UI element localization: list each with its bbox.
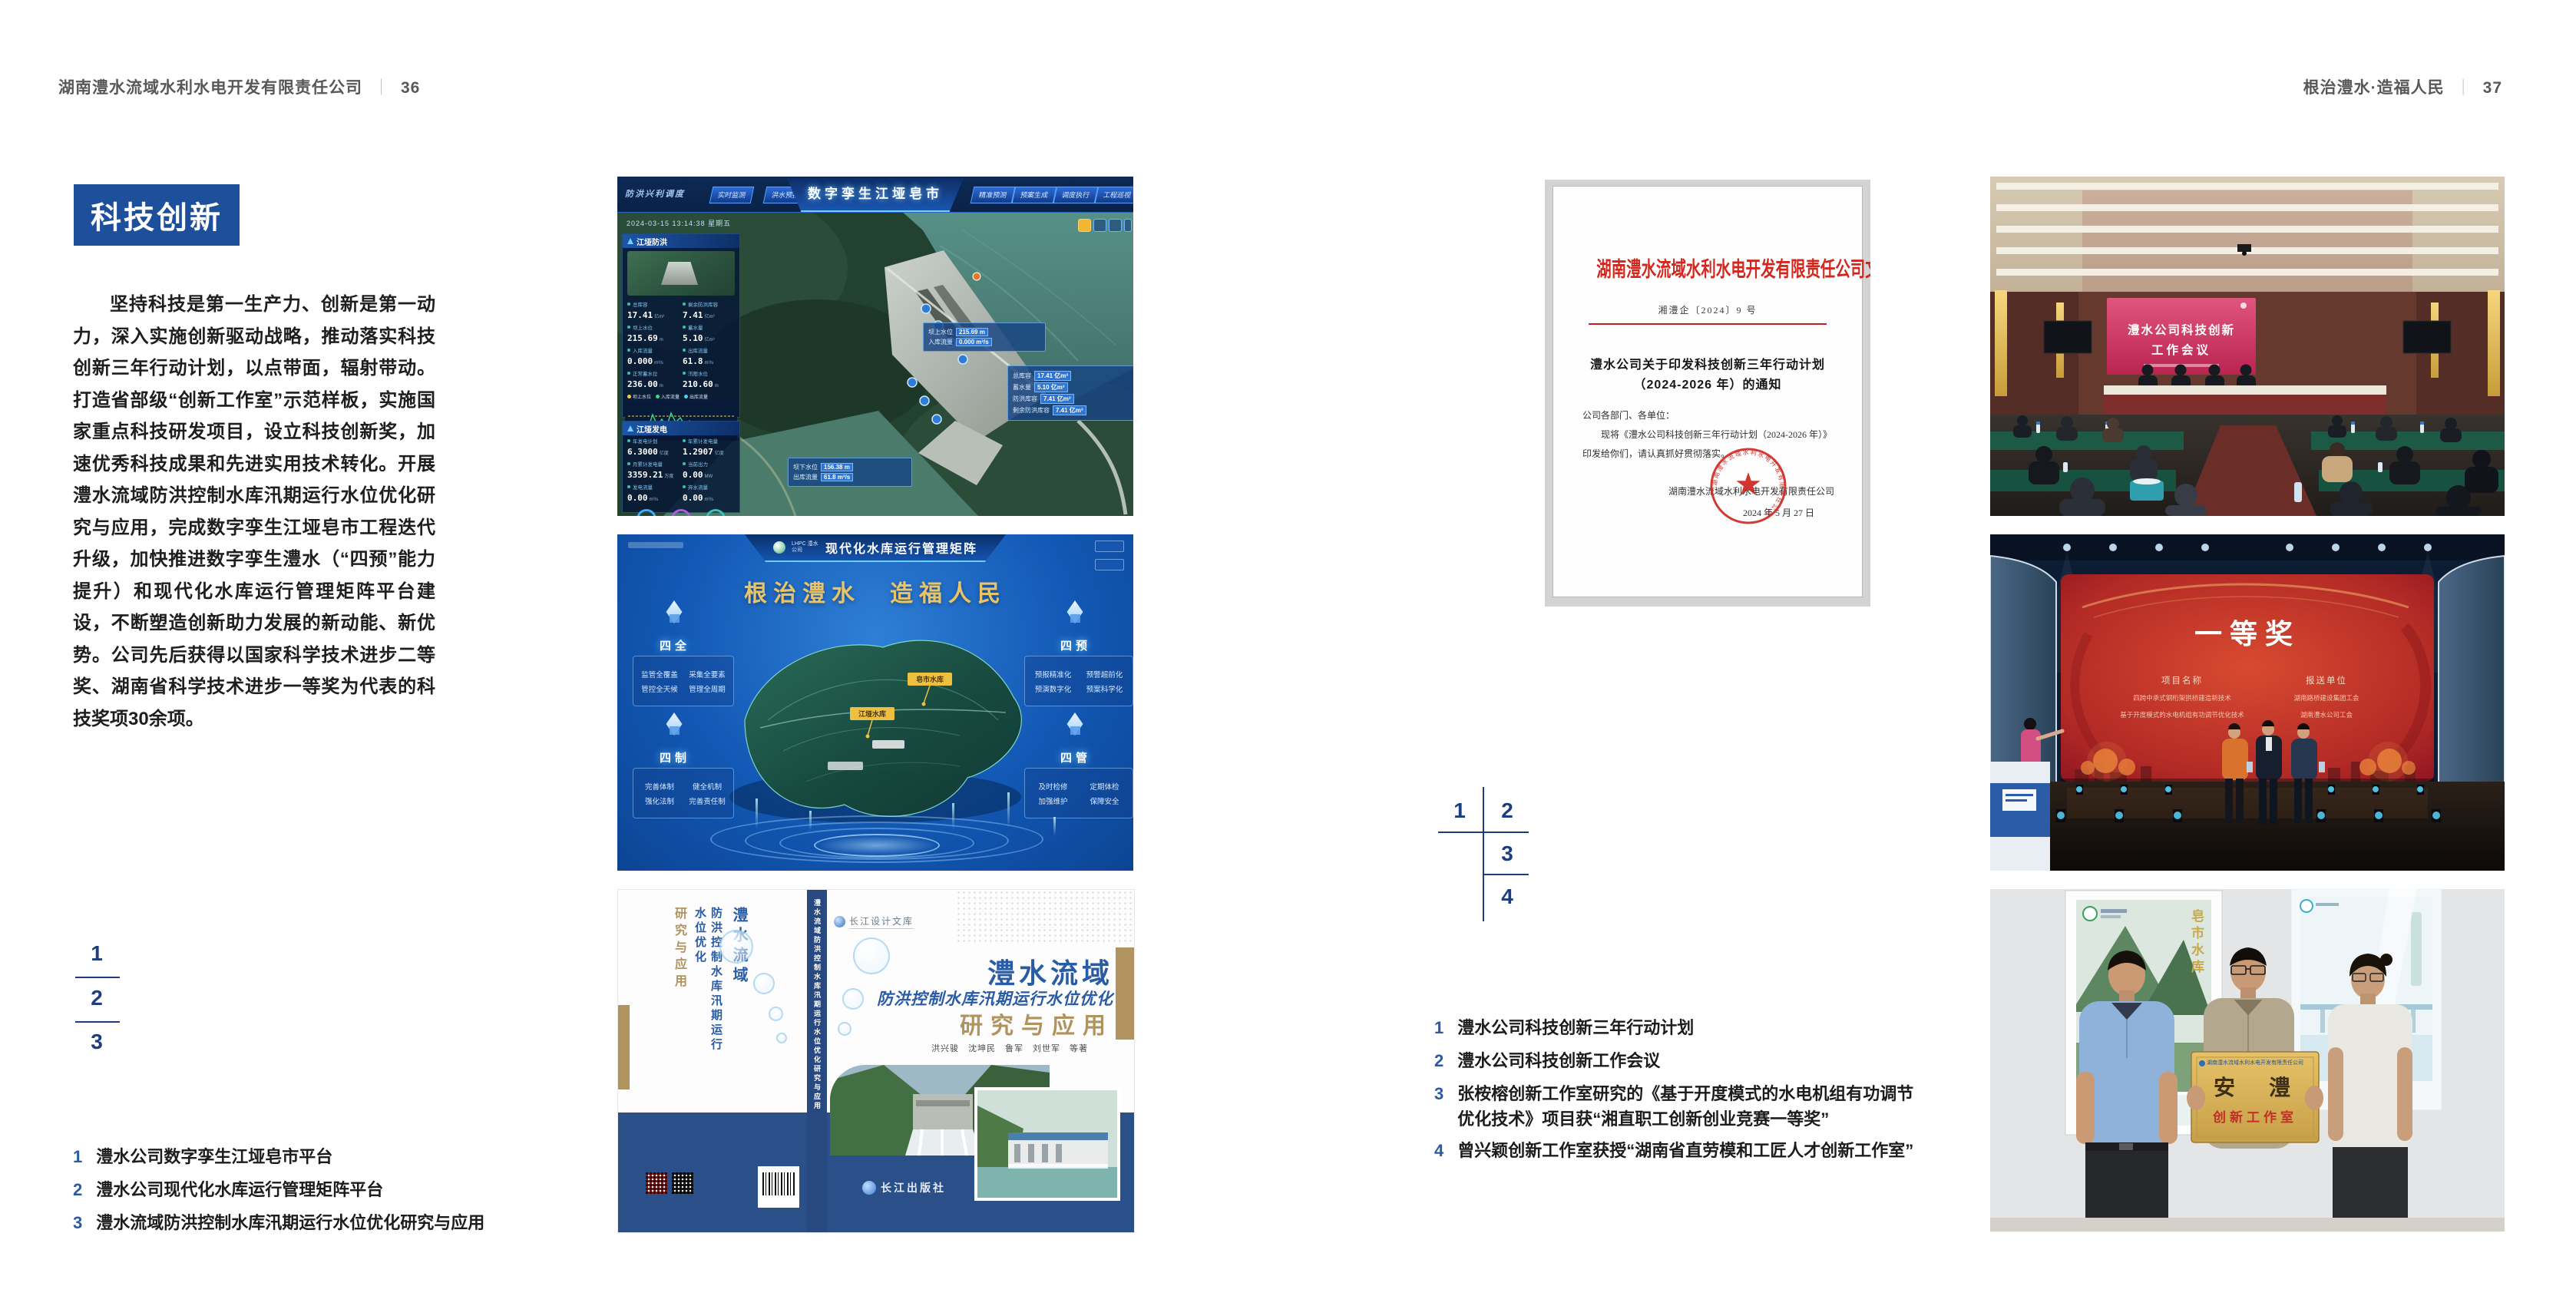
figure-award-ceremony-photo: 一等奖 项目名称 报送单位 四跨中承式钢桁架拱桥建造新技术 基于开度模式的水电机… xyxy=(1990,534,2505,871)
panel-header: 江垭防洪 xyxy=(623,234,739,248)
award-project-row: 基于开度模式的水电机组有功调节优化技术 xyxy=(2120,711,2244,719)
caption-text: 张桉榕创新工作室研究的《基于开度模式的水电机组有功调节优化技术》项目获“湘直职工… xyxy=(1457,1081,1926,1132)
publisher-logo-icon xyxy=(862,1181,876,1195)
body-paragraph: 坚持科技是第一生产力、创新是第一动力，深入实施创新驱动战略，推动落实科技创新三年… xyxy=(73,289,435,735)
right-page-number: 37 xyxy=(2483,79,2502,97)
matrix-header: LHPC 澧水公司 现代化水库运行管理矩阵 xyxy=(745,534,1006,562)
group-item: 预报精准化 xyxy=(1028,669,1078,679)
left-header-company: 湖南澧水流域水利水电开发有限责任公司 xyxy=(58,79,362,97)
back-title-sub: 防洪控制水库汛期运行水位优化 xyxy=(692,907,724,1060)
qr-code xyxy=(646,1172,667,1194)
stat-label: 年发电计划 xyxy=(627,437,680,445)
map-label-jiangya: 江垭水库 xyxy=(858,709,886,718)
award-project-row: 四跨中承式钢桁架拱桥建造新技术 xyxy=(2133,694,2231,702)
group-panel: 完善体制 健全机制 强化法制 完善责任制 xyxy=(633,768,734,818)
group-item: 加强维护 xyxy=(1028,795,1078,806)
stat-label: 正常蓄水位 xyxy=(627,369,680,377)
caption-number: 3 xyxy=(1434,1081,1443,1132)
caption-number: 2 xyxy=(73,1177,82,1202)
group-item: 及时检修 xyxy=(1028,781,1078,792)
stat-value: 17.41 xyxy=(627,310,653,320)
publisher-block: 长江出版社 xyxy=(862,1180,946,1195)
company-logo-icon xyxy=(773,541,785,554)
caption-row: 3 张桉榕创新工作室研究的《基于开度模式的水电机组有功调节优化技术》项目获“湘直… xyxy=(1434,1081,1937,1132)
tip-value: 215.69 m xyxy=(956,328,988,336)
left-page-number: 36 xyxy=(401,79,420,97)
group-panel: 监管全覆盖 采集全要素 管控全天候 管理全周期 xyxy=(633,656,734,706)
locate-icon[interactable] xyxy=(1109,219,1122,232)
caption-row: 2 澧水公司科技创新工作会议 xyxy=(1434,1048,1941,1073)
stat-value: 1.2907 xyxy=(683,447,713,457)
stat-value: 0.00 xyxy=(683,470,703,480)
tip-label: 剩余防洪库容 xyxy=(1013,406,1050,415)
caption-text: 澧水公司数字孪生江垭皂市平台 xyxy=(96,1144,332,1169)
brochure-spread: 湖南澧水流域水利水电开发有限责任公司｜36 科技创新 坚持科技是第一生产力、创新… xyxy=(0,0,2576,1306)
stat-unit: 亿m³ xyxy=(705,315,715,319)
chart-legend: 坝上水位 入库流量 出库流量 xyxy=(623,392,739,401)
stat-label: 当前出力 xyxy=(683,460,735,468)
stat-value: 61.8 xyxy=(683,356,703,366)
caption-row: 4 曾兴颖创新工作室获授“湖南省直劳模和工匠人才创新工作室” xyxy=(1434,1138,1941,1163)
bubble-art xyxy=(776,1033,787,1043)
award-col1-header: 项目名称 xyxy=(2161,675,2203,686)
stat-value: 210.60 xyxy=(683,379,713,389)
stat-value: 3359.21 xyxy=(627,470,663,480)
figure-marker: 1 xyxy=(1437,798,1483,823)
tip-value: 156.38 m xyxy=(821,463,853,471)
book-title-accent: 研究与应用 xyxy=(960,1007,1113,1040)
book-title-main: 澧水流域 xyxy=(987,951,1113,991)
user-icon[interactable] xyxy=(1078,219,1091,232)
tip-label: 出库流量 xyxy=(793,473,818,481)
alert-icon[interactable] xyxy=(1124,219,1132,232)
isbn-barcode xyxy=(758,1166,799,1208)
group-item: 预警超前化 xyxy=(1080,669,1129,679)
dashboard-datetime: 2024-03-15 13:14:38 星期五 xyxy=(627,218,731,228)
stat-label: 坝上水位 xyxy=(627,323,680,331)
stat-value: 0.00 xyxy=(627,493,648,503)
publisher-name: 长江出版社 xyxy=(881,1180,946,1195)
series-logo-icon xyxy=(834,916,845,927)
plaque-studio-name: 安 澧 xyxy=(2191,1071,2319,1102)
tab-dispatch-execute[interactable]: 调度执行 xyxy=(1053,187,1099,203)
tip-label: 坝上水位 xyxy=(928,328,953,336)
caption-number: 1 xyxy=(73,1144,82,1169)
cube-icon xyxy=(1066,717,1086,737)
caption-row: 1 澧水公司数字孪生江垭皂市平台 xyxy=(73,1144,549,1169)
cube-icon xyxy=(1066,605,1086,625)
stat-value: 6.3000 xyxy=(627,447,658,457)
series-logo-text: 长江设计文库 xyxy=(849,914,914,929)
header-separator: ｜ xyxy=(2455,79,2472,97)
dot-pattern xyxy=(956,890,1134,945)
stat-value: 215.69 xyxy=(627,333,658,343)
bubble-art xyxy=(719,930,753,964)
stat-value: 7.41 xyxy=(683,310,703,320)
dam-thumbnail xyxy=(627,251,735,296)
matrix-title: 现代化水库运行管理矩阵 xyxy=(825,538,977,557)
caption-row: 2 澧水公司现代化水库运行管理矩阵平台 xyxy=(73,1177,549,1202)
caption-number: 4 xyxy=(1434,1138,1443,1163)
light-pillar xyxy=(809,811,812,831)
award-screen-title: 一等奖 xyxy=(2194,618,2300,650)
back-title-accent: 研究与应用 xyxy=(670,907,688,1060)
stat-unit: m xyxy=(715,384,719,388)
stat-unit: m³/s xyxy=(654,361,663,365)
group-item: 管控全天候 xyxy=(637,683,683,694)
datetime-bar xyxy=(628,542,683,548)
group-item: 健全机制 xyxy=(684,781,730,792)
flood-control-panel: 江垭防洪 总库容17.41亿m³ 剩余防洪库容7.41亿m³ 坝上水位215.6… xyxy=(622,233,740,418)
spine-title: 澧水流域防洪控制水库汛期运行水位优化研究与应用 xyxy=(812,899,822,1129)
caption-number: 2 xyxy=(1434,1048,1443,1073)
group-title: 四预 xyxy=(1026,637,1126,653)
caption-text: 澧水流域防洪控制水库汛期运行水位优化研究与应用 xyxy=(96,1210,484,1235)
group-item: 预演数字化 xyxy=(1028,683,1078,694)
caption-text: 澧水公司科技创新三年行动计划 xyxy=(1457,1015,1694,1040)
power-generation-panel: 江垭发电 年发电计划6.3000亿度 年累计发电量1.2907亿度 月累计发电量… xyxy=(622,421,740,513)
group-panel: 预报精准化 预警超前化 预演数字化 预案科学化 xyxy=(1024,656,1133,706)
bubble-art xyxy=(753,973,775,994)
group-item: 管理全周期 xyxy=(684,683,730,694)
layers-icon[interactable] xyxy=(1093,219,1106,232)
book-authors: 洪兴骏 沈坤民 鲁军 刘世军 等著 xyxy=(931,1042,1088,1054)
panel-header: 江垭发电 xyxy=(623,422,739,435)
stat-unit: 亿度 xyxy=(660,451,669,456)
group-panel: 及时检修 定期体检 加强维护 保障安全 xyxy=(1024,768,1133,818)
marker-divider xyxy=(1483,874,1529,875)
stat-unit: 万度 xyxy=(664,474,673,479)
plaque-company-line: 湖南澧水流域水利水电开发有限责任公司 xyxy=(2191,1059,2319,1066)
light-pillar xyxy=(756,798,758,829)
document-salutation: 公司各部门、各单位： xyxy=(1582,406,1833,425)
stat-value: 236.00 xyxy=(627,379,658,389)
section-title-badge: 科技创新 xyxy=(74,184,240,246)
document-red-rule xyxy=(1589,323,1827,325)
fullscreen-button[interactable] xyxy=(1095,541,1124,552)
group-item: 完善责任制 xyxy=(684,795,730,806)
figure-plaque-group-photo: 皂市水库 湖南澧水流域水利水电开发有限责任公司 安 澧 创新工作室 xyxy=(1990,889,2505,1232)
figure-book-cover: 澧水流域 防洪控制水库汛期运行水位优化 研究与应用 澧水流域防洪控制水库汛期运行… xyxy=(617,889,1135,1233)
stat-label: 剩余防洪库容 xyxy=(683,300,735,308)
right-header-slogan: 根治澧水·造福人民 xyxy=(2303,79,2445,97)
caption-text: 曾兴颖创新工作室获授“湖南省直劳模和工匠人才创新工作室” xyxy=(1457,1138,1913,1163)
group-title: 四制 xyxy=(625,749,725,765)
stat-label: 汛限水位 xyxy=(683,369,735,377)
group-item: 完善体制 xyxy=(637,781,683,792)
marker-divider xyxy=(75,1021,120,1023)
tip-value: 17.41 亿m³ xyxy=(1034,371,1071,381)
document-title-line2: （2024-2026 年）的通知 xyxy=(1553,374,1862,392)
marker-divider xyxy=(75,977,120,978)
tip-value: 7.41 亿m³ xyxy=(1040,394,1074,404)
tab-precise-forecast[interactable]: 精准预测 xyxy=(971,187,1016,203)
tip-value: 5.10 亿m³ xyxy=(1034,382,1068,392)
stat-unit: 亿度 xyxy=(715,451,724,456)
tip-label: 防洪库容 xyxy=(1013,395,1037,403)
figure-official-document: 湖南澧水流域水利水电开发有限责任公司文件 湘澧企〔2024〕9 号 澧水公司关于… xyxy=(1545,180,1870,607)
caption-number: 3 xyxy=(73,1210,82,1235)
tip-label: 坝下水位 xyxy=(793,463,818,471)
stat-label: 发电流量 xyxy=(627,483,680,491)
nav-section-label: 防洪兴利调度 xyxy=(625,187,685,200)
tip-value: 7.41 亿m³ xyxy=(1053,405,1086,415)
stat-unit: MW xyxy=(705,474,713,479)
tab-realtime-monitor[interactable]: 实时监测 xyxy=(709,187,755,203)
map-tooltip-downstream: 坝下水位156.38 m 出库流量61.8 m³/s xyxy=(788,458,912,487)
meeting-screen-line1: 澧水公司科技创新 xyxy=(2128,322,2235,337)
stat-label: 年累计发电量 xyxy=(683,437,735,445)
tip-label: 总库容 xyxy=(1013,372,1031,380)
tip-label: 蓄水量 xyxy=(1013,383,1031,392)
generation-stats-grid: 年发电计划6.3000亿度 年累计发电量1.2907亿度 月累计发电量3359.… xyxy=(623,435,739,506)
figure-digital-twin-platform: 防洪兴利调度 实时监测 洪水预报 防洪预演 数字孪生江垭皂市 精准预测 预案生成… xyxy=(617,177,1133,516)
group-item: 强化法制 xyxy=(637,795,683,806)
caption-row: 1 澧水公司科技创新三年行动计划 xyxy=(1434,1015,1941,1040)
group-title: 四管 xyxy=(1026,749,1126,765)
unit-gauges xyxy=(623,506,739,516)
stat-unit: m³/s xyxy=(705,498,714,502)
meeting-scene-art: 澧水公司科技创新 工作会议 xyxy=(1990,177,2505,516)
cube-icon xyxy=(665,605,685,625)
tip-label: 入库流量 xyxy=(928,338,953,346)
left-page-header: 湖南澧水流域水利水电开发有限责任公司｜36 xyxy=(58,75,420,98)
stat-label: 出库流量 xyxy=(683,346,735,354)
document-number: 湘澧企〔2024〕9 号 xyxy=(1553,303,1862,316)
company-logo-text: LHPC 澧水公司 xyxy=(792,541,819,554)
group-title: 四全 xyxy=(625,637,725,653)
stat-label: 弃水流量 xyxy=(683,483,735,491)
slogan-calligraphy: 根治澧水 造福人民 xyxy=(617,574,1133,608)
tip-value: 61.8 m³/s xyxy=(821,473,853,481)
series-logo: 长江设计文库 xyxy=(834,914,914,929)
stat-unit: m xyxy=(660,338,663,342)
figure-marker: 3 xyxy=(74,1030,120,1054)
group-item: 保障安全 xyxy=(1080,795,1129,806)
legend-item: 坝上水位 xyxy=(627,393,651,400)
caption-text: 澧水公司现代化水库运行管理矩阵平台 xyxy=(96,1177,383,1202)
stat-value: 0.000 xyxy=(627,356,653,366)
legend-item: 出库流量 xyxy=(684,393,708,400)
figure-matrix-platform: LHPC 澧水公司 现代化水库运行管理矩阵 根治澧水 造福人民 皂市水库 xyxy=(617,534,1133,871)
powerhouse-photo xyxy=(974,1087,1120,1201)
caption-text: 澧水公司科技创新工作会议 xyxy=(1457,1048,1660,1073)
award-scene-art: 一等奖 项目名称 报送单位 四跨中承式钢桁架拱桥建造新技术 基于开度模式的水电机… xyxy=(1990,534,2505,871)
figure-marker: 3 xyxy=(1484,841,1530,866)
stat-unit: m³/s xyxy=(650,498,659,502)
light-pillar xyxy=(1053,817,1056,835)
bubble-art xyxy=(838,1022,852,1036)
light-pillar xyxy=(952,803,954,829)
meeting-screen-line2: 工作会议 xyxy=(2151,342,2211,357)
bubble-art xyxy=(853,937,890,974)
header-separator: ｜ xyxy=(373,79,390,97)
legend-item: 入库流量 xyxy=(656,393,680,400)
tab-project-inspect[interactable]: 工程巡视 xyxy=(1095,187,1133,203)
figure-marker: 2 xyxy=(74,986,120,1010)
qr-code xyxy=(672,1172,693,1194)
right-page-header: 根治澧水·造福人民｜37 xyxy=(2303,75,2502,98)
stat-label: 入库流量 xyxy=(627,346,680,354)
ripple-core xyxy=(814,834,940,857)
plaque-studio-type: 创新工作室 xyxy=(2191,1106,2319,1126)
caption-row: 3 澧水流域防洪控制水库汛期运行水位优化研究与应用 xyxy=(73,1210,564,1235)
flood-stats-grid: 总库容17.41亿m³ 剩余防洪库容7.41亿m³ 坝上水位215.69m 蓄水… xyxy=(623,299,739,392)
official-red-seal: 湖南澧水流域水利水电开发有限责任公司 xyxy=(1704,441,1793,531)
stat-unit: m³/s xyxy=(705,361,714,365)
tip-value: 0.000 m³/s xyxy=(956,338,992,346)
figure-marker: 2 xyxy=(1484,798,1530,823)
award-unit-row: 湖南路桥建设集团工会 xyxy=(2293,694,2359,702)
group-item: 监管全覆盖 xyxy=(637,669,683,679)
bubble-art xyxy=(842,988,864,1010)
dashboard-title: 数字孪生江垭皂市 xyxy=(787,178,964,212)
stat-unit: m xyxy=(660,384,663,388)
stat-value: 0.00 xyxy=(683,493,703,503)
marker-divider xyxy=(1438,832,1529,833)
group-item: 采集全要素 xyxy=(684,669,730,679)
light-pillar xyxy=(1007,792,1010,828)
award-unit-row: 湖南澧水公司工会 xyxy=(2300,711,2353,719)
tab-plan-generate[interactable]: 预案生成 xyxy=(1012,187,1057,203)
document-sheet: 湖南澧水流域水利水电开发有限责任公司文件 湘澧企〔2024〕9 号 澧水公司关于… xyxy=(1553,186,1863,597)
figure-marker: 4 xyxy=(1484,884,1530,909)
stat-label: 蓄水量 xyxy=(683,323,735,331)
document-title-line1: 澧水公司关于印发科技创新三年行动计划 xyxy=(1553,354,1862,372)
stat-unit: 亿m³ xyxy=(654,315,664,319)
stat-value: 5.10 xyxy=(683,333,703,343)
award-col2-header: 报送单位 xyxy=(2306,675,2347,686)
basin-3d-map: 皂市水库 江垭水库 xyxy=(714,605,1037,835)
caption-number: 1 xyxy=(1434,1015,1443,1040)
bubble-art xyxy=(769,1007,783,1021)
map-label-zaoshi: 皂市水库 xyxy=(916,675,944,683)
map-tooltip-upstream: 坝上水位215.69 m 入库流量0.000 m³/s xyxy=(923,322,1046,352)
menu-button[interactable] xyxy=(1095,559,1124,570)
figure-marker: 1 xyxy=(74,941,120,966)
back-accent-block xyxy=(618,1005,630,1089)
stat-label: 月累计发电量 xyxy=(627,460,680,468)
stat-unit: 亿m³ xyxy=(705,338,715,342)
map-tooltip-capacity: 总库容17.41 亿m³ 蓄水量5.10 亿m³ 防洪库容7.41 亿m³ 剩余… xyxy=(1007,365,1133,421)
group-item: 定期体检 xyxy=(1080,781,1129,792)
poster-vertical-label: 皂市水库 xyxy=(2187,909,2206,1009)
cube-icon xyxy=(665,717,685,737)
figure-meeting-photo: 澧水公司科技创新 工作会议 xyxy=(1990,177,2505,516)
front-accent-block xyxy=(1116,947,1134,1040)
document-red-header: 湖南澧水流域水利水电开发有限责任公司文件 xyxy=(1596,253,1818,283)
stat-label: 总库容 xyxy=(627,300,680,308)
group-item: 预案科学化 xyxy=(1080,683,1129,694)
